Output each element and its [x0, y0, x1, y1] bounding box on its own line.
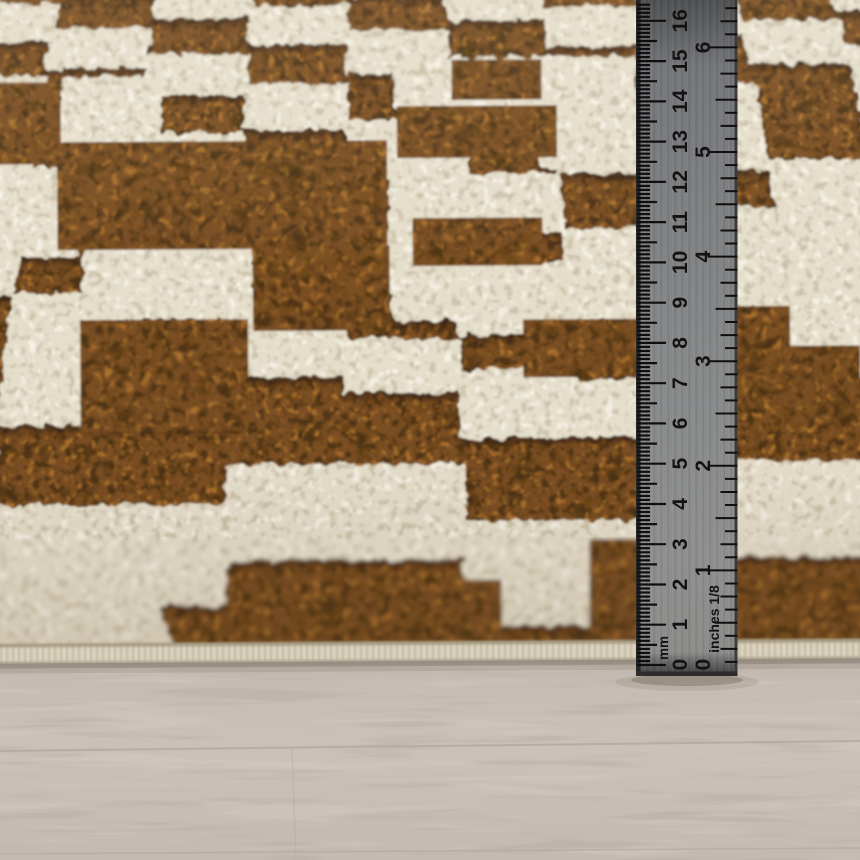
svg-text:0: 0: [692, 659, 715, 671]
svg-text:1: 1: [692, 564, 715, 576]
svg-text:14: 14: [669, 89, 692, 113]
svg-text:0: 0: [669, 659, 692, 671]
svg-text:9: 9: [669, 297, 692, 309]
svg-text:mm: mm: [656, 636, 671, 660]
svg-text:1: 1: [669, 619, 692, 631]
svg-text:4: 4: [669, 498, 692, 510]
svg-text:11: 11: [669, 211, 692, 234]
svg-text:8: 8: [669, 337, 692, 349]
svg-text:4: 4: [692, 250, 715, 262]
svg-text:2: 2: [669, 579, 692, 591]
svg-text:13: 13: [669, 130, 692, 153]
svg-text:3: 3: [692, 355, 715, 367]
svg-text:6: 6: [692, 42, 715, 54]
svg-text:2: 2: [692, 460, 715, 472]
svg-text:3: 3: [669, 538, 692, 550]
svg-text:12: 12: [669, 170, 692, 193]
svg-text:5: 5: [692, 146, 715, 158]
svg-text:15: 15: [669, 49, 692, 73]
svg-text:7: 7: [669, 377, 692, 389]
svg-text:6: 6: [669, 418, 692, 430]
svg-text:inches 1/8: inches 1/8: [706, 585, 722, 653]
svg-text:16: 16: [669, 9, 692, 32]
svg-text:10: 10: [669, 251, 692, 274]
svg-text:5: 5: [669, 458, 692, 470]
